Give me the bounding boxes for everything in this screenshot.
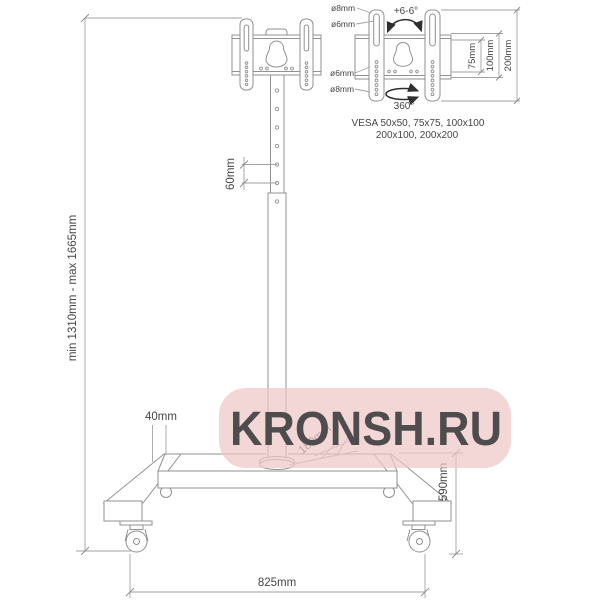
tilt-angle-label: +6-6° bbox=[394, 6, 418, 17]
watermark: KRONSH.RU bbox=[219, 388, 511, 468]
hole-spacing-label: 60mm bbox=[225, 158, 237, 190]
technical-drawing-page: min 1310mm - max 1665mm 60mm 40mm 180mm bbox=[0, 0, 600, 600]
detail-left-rail bbox=[369, 10, 384, 101]
detail-dim-100: 100mm bbox=[485, 40, 496, 72]
hole-label-1: ø8mm bbox=[331, 3, 355, 13]
height-range-label: min 1310mm - max 1665mm bbox=[67, 215, 79, 361]
left-post bbox=[104, 501, 142, 521]
right-post bbox=[413, 501, 451, 521]
bracket-top-tab bbox=[266, 29, 287, 35]
leg-tube-label: 40mm bbox=[145, 411, 177, 423]
base-depth-label: 590mm bbox=[438, 463, 450, 501]
detail-dim-200: 200mm bbox=[503, 40, 514, 72]
detail-dim-75: 75mm bbox=[467, 43, 478, 69]
base-width-label: 825mm bbox=[258, 577, 296, 589]
pole-inner-tube bbox=[271, 75, 285, 193]
hole-spacing-dimension: 60mm bbox=[225, 157, 277, 190]
watermark-text: KRONSH.RU bbox=[230, 403, 502, 456]
tv-stand-dimension-diagram: min 1310mm - max 1665mm 60mm 40mm 180mm bbox=[0, 0, 600, 600]
swivel-angle-label: 360° bbox=[394, 101, 415, 112]
hole-label-3: ø6mm bbox=[330, 68, 354, 78]
vesa-compat-line1: VESA 50x50, 75x75, 100x100 bbox=[352, 118, 485, 129]
vesa-detail-drawing: +6-6° 360° ø8mm ø6mm ø6mm ø8mm bbox=[330, 3, 520, 141]
hole-label-2: ø6mm bbox=[331, 19, 355, 29]
vesa-compat-line2: 200x100, 200x200 bbox=[376, 130, 459, 141]
left-wheel bbox=[126, 531, 147, 552]
detail-right-rail bbox=[425, 10, 440, 101]
width-dimension: 825mm bbox=[126, 554, 429, 598]
right-wheel bbox=[409, 531, 430, 552]
tilt-arrow-icon bbox=[388, 20, 421, 31]
front-caster-left bbox=[120, 521, 152, 552]
swivel-arrow-icon bbox=[386, 89, 417, 100]
detail-dimensions: 75mm 100mm 200mm bbox=[441, 7, 520, 104]
front-caster-right bbox=[403, 521, 435, 552]
cross-beam bbox=[158, 471, 397, 488]
hole-label-4: ø8mm bbox=[330, 84, 354, 94]
